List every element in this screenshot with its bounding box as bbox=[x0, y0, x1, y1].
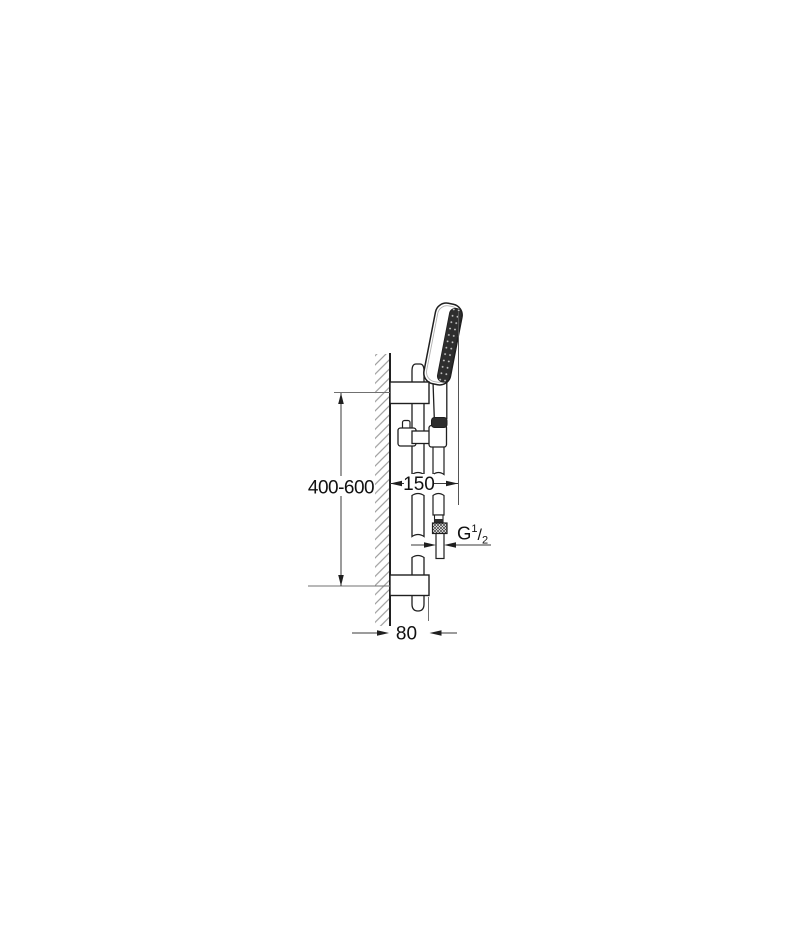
shower-rail-diagram: 400-600 150 G1/2 80 bbox=[0, 0, 800, 950]
arrowhead-left-pointing bbox=[430, 630, 442, 636]
arrowhead-right-pointing bbox=[424, 542, 436, 548]
shower-hose-upper bbox=[433, 446, 444, 475]
dim-label-wall-to-rail-end: 80 bbox=[396, 624, 417, 645]
dimension-wall-to-rail-end: 80 bbox=[352, 597, 457, 645]
wall-hatching bbox=[375, 354, 390, 626]
shower-head bbox=[422, 301, 464, 387]
dim-label-rail-height: 400-600 bbox=[308, 478, 374, 499]
holder-handle-socket bbox=[429, 426, 447, 448]
dim-label-thread: G1/2 bbox=[457, 523, 488, 547]
wall bbox=[375, 353, 390, 626]
handle-connector-nut bbox=[432, 418, 448, 428]
top-wall-bracket bbox=[390, 382, 429, 404]
thread-denominator: 2 bbox=[482, 535, 488, 547]
knurled-union-nut bbox=[433, 523, 448, 534]
shower-hose-lower bbox=[433, 494, 444, 516]
hose-thread-connector bbox=[433, 494, 448, 559]
bottom-wall-bracket bbox=[390, 575, 429, 596]
technical-drawing-canvas: 400-600 150 G1/2 80 bbox=[0, 0, 800, 950]
arrowhead-right bbox=[446, 481, 458, 487]
rail-upper-segment bbox=[412, 364, 424, 475]
arrowhead-up bbox=[338, 393, 344, 404]
dim-label-wall-to-hose: 150 bbox=[403, 474, 435, 495]
thread-prefix: G bbox=[457, 523, 471, 544]
arrowhead-left-pointing bbox=[444, 542, 456, 548]
thread-pipe bbox=[436, 534, 444, 559]
rail-middle-segment bbox=[412, 494, 424, 537]
arrowhead-down bbox=[338, 575, 344, 586]
arrowhead-right-pointing bbox=[377, 630, 389, 636]
arrowhead-left bbox=[390, 481, 402, 487]
